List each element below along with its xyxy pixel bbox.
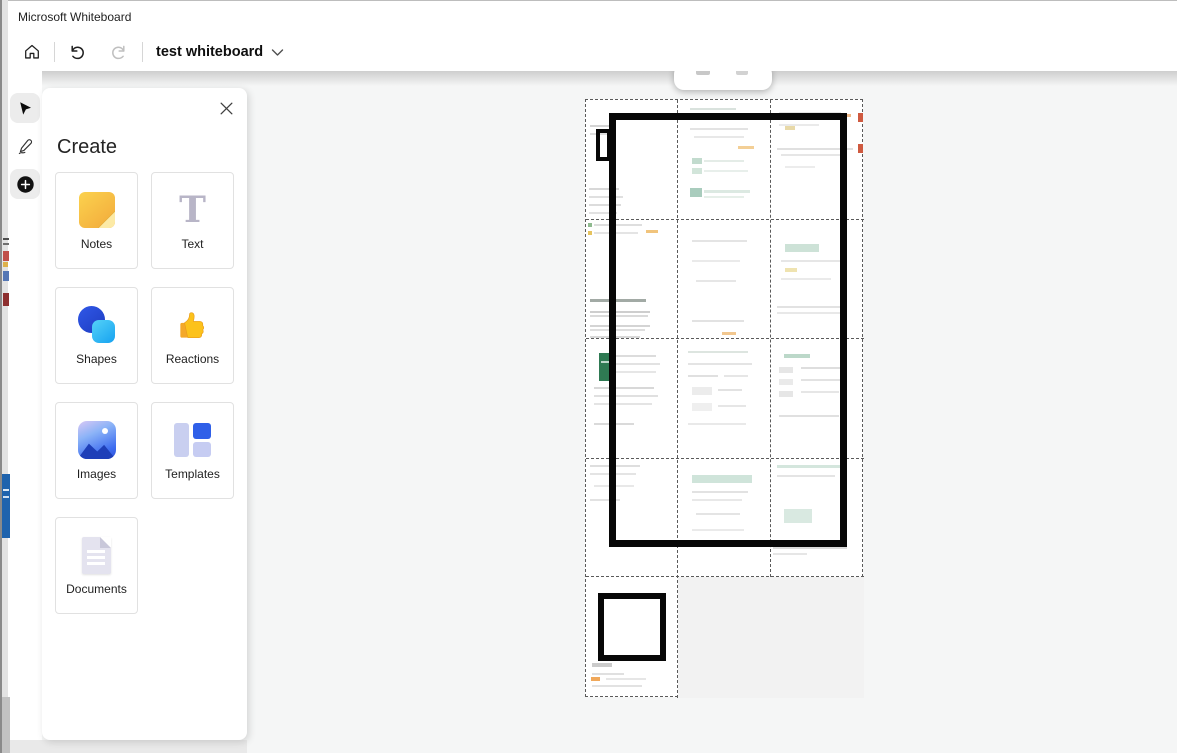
chevron-down-icon xyxy=(271,48,284,57)
toolbar-shadow xyxy=(8,71,1177,86)
add-tool-button[interactable] xyxy=(10,169,40,199)
undo-button[interactable] xyxy=(63,38,91,66)
sticky-note-icon xyxy=(77,190,117,230)
background-window-edge xyxy=(0,0,8,753)
panel-underlay xyxy=(8,740,247,753)
ink-stroke-large-rectangle[interactable] xyxy=(609,113,847,547)
toolbar-divider xyxy=(142,42,143,62)
create-card-text[interactable]: T Text xyxy=(151,172,234,269)
ink-stroke-small-rectangle-top[interactable] xyxy=(596,129,611,161)
create-card-reactions[interactable]: Reactions xyxy=(151,287,234,384)
ink-tool-button[interactable] xyxy=(10,131,40,161)
redo-button[interactable] xyxy=(105,38,133,66)
create-cards: Notes T Text Shapes Reactions xyxy=(55,172,234,614)
create-panel: Create Notes T Text Shapes Reactions xyxy=(42,88,247,740)
background-window-edge-bottom xyxy=(2,697,10,753)
image-icon xyxy=(77,420,117,460)
close-icon xyxy=(219,101,234,116)
card-label: Text xyxy=(181,237,203,251)
document-icon xyxy=(77,535,117,575)
card-label: Notes xyxy=(81,237,112,251)
templates-icon xyxy=(173,420,213,460)
card-label: Documents xyxy=(66,582,127,596)
cursor-arrow-icon xyxy=(16,99,34,117)
redo-icon xyxy=(110,43,128,61)
panel-title: Create xyxy=(57,136,117,159)
home-button[interactable] xyxy=(18,38,46,66)
create-card-shapes[interactable]: Shapes xyxy=(55,287,138,384)
create-card-documents[interactable]: Documents xyxy=(55,517,138,614)
app-title: Microsoft Whiteboard xyxy=(18,10,131,24)
card-label: Images xyxy=(77,467,116,481)
close-button[interactable] xyxy=(217,99,235,117)
create-card-notes[interactable]: Notes xyxy=(55,172,138,269)
card-label: Templates xyxy=(165,467,220,481)
shapes-icon xyxy=(77,305,117,345)
toolbar: test whiteboard xyxy=(8,33,1177,71)
titlebar: Microsoft Whiteboard xyxy=(8,0,1177,33)
create-card-templates[interactable]: Templates xyxy=(151,402,234,499)
tool-rail xyxy=(8,71,42,740)
card-label: Reactions xyxy=(166,352,219,366)
thumbs-up-icon xyxy=(173,305,213,345)
home-icon xyxy=(23,43,41,61)
toolbar-divider xyxy=(54,42,55,62)
card-label: Shapes xyxy=(76,352,117,366)
text-icon: T xyxy=(173,190,213,230)
whiteboard-page-r5c2-empty[interactable] xyxy=(678,577,864,698)
grid-divider xyxy=(586,576,864,577)
pen-icon xyxy=(16,137,35,156)
select-tool-button[interactable] xyxy=(10,93,40,123)
board-name-dropdown[interactable]: test whiteboard xyxy=(152,39,288,65)
plus-icon xyxy=(16,175,35,194)
undo-icon xyxy=(68,43,86,61)
create-card-images[interactable]: Images xyxy=(55,402,138,499)
ink-stroke-small-square-bottom[interactable] xyxy=(598,593,666,661)
board-name-label: test whiteboard xyxy=(156,44,263,60)
